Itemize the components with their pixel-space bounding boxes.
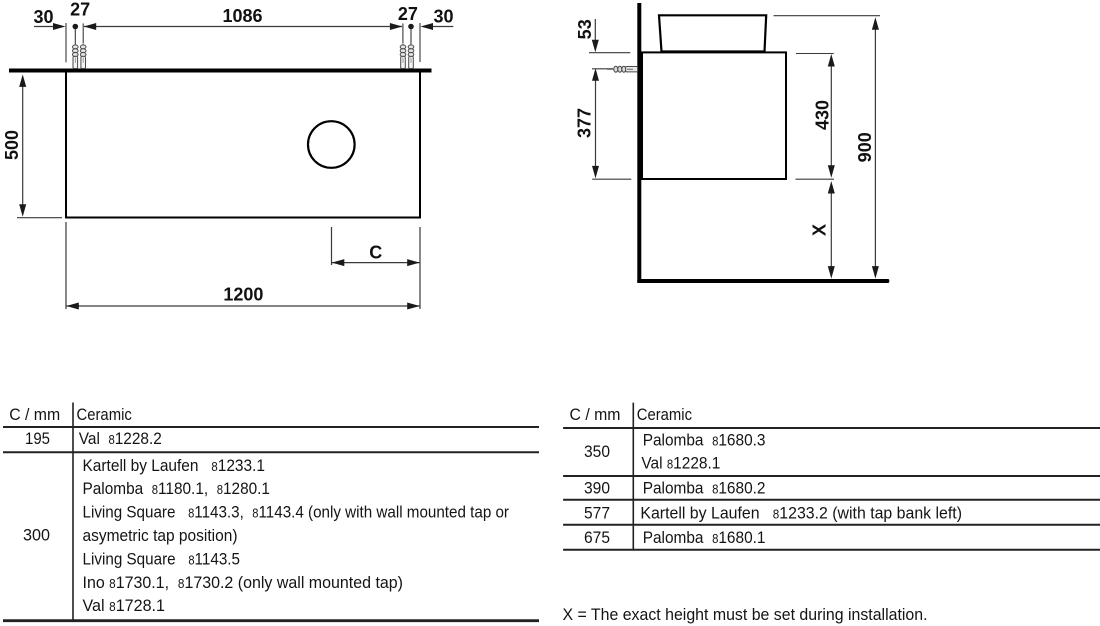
svg-text:900: 900 bbox=[855, 132, 875, 162]
svg-text:1086: 1086 bbox=[222, 6, 262, 26]
svg-text:Val 81228.1: Val 81228.1 bbox=[641, 454, 720, 473]
svg-text:X = The exact height must be s: X = The exact height must be set during … bbox=[563, 605, 928, 624]
svg-text:27: 27 bbox=[398, 4, 418, 24]
svg-text:350: 350 bbox=[584, 442, 610, 461]
svg-text:Val 81728.1: Val 81728.1 bbox=[83, 596, 166, 615]
svg-text:27: 27 bbox=[70, 0, 90, 20]
svg-text:Ceramic: Ceramic bbox=[637, 405, 693, 424]
svg-text:Kartell by Laufen 81233.1: Kartell by Laufen 81233.1 bbox=[83, 456, 266, 475]
svg-text:195: 195 bbox=[25, 429, 50, 448]
svg-text:C / mm: C / mm bbox=[570, 405, 621, 424]
svg-text:377: 377 bbox=[575, 108, 595, 138]
svg-text:C / mm: C / mm bbox=[9, 405, 60, 424]
svg-text:Val 81228.2: Val 81228.2 bbox=[79, 429, 162, 448]
svg-text:Palomba 81180.1, 81280.1: Palomba 81180.1, 81280.1 bbox=[83, 479, 271, 498]
svg-text:Kartell by Laufen 81233.2 (w: Kartell by Laufen 81233.2 (with tap bank… bbox=[640, 503, 962, 522]
svg-text:C: C bbox=[369, 243, 382, 263]
svg-text:500: 500 bbox=[2, 130, 22, 160]
svg-text:675: 675 bbox=[584, 528, 610, 547]
svg-text:53: 53 bbox=[575, 19, 595, 39]
svg-text:577: 577 bbox=[584, 503, 610, 522]
svg-text:asymetric tap position): asymetric tap position) bbox=[83, 526, 238, 545]
svg-text:Living Square 81143.3, 8114: Living Square 81143.3, 81143.4 (only wit… bbox=[83, 503, 510, 522]
svg-text:30: 30 bbox=[433, 6, 453, 26]
svg-text:300: 300 bbox=[23, 526, 50, 545]
svg-text:430: 430 bbox=[813, 100, 833, 130]
svg-text:30: 30 bbox=[33, 7, 53, 27]
svg-text:Palomba 81680.2: Palomba 81680.2 bbox=[643, 478, 766, 497]
svg-text:Palomba 81680.3: Palomba 81680.3 bbox=[643, 431, 766, 450]
svg-text:Ceramic: Ceramic bbox=[77, 405, 133, 424]
svg-text:1200: 1200 bbox=[223, 285, 263, 305]
svg-text:Palomba 81680.1: Palomba 81680.1 bbox=[643, 528, 766, 547]
svg-text:Ino 81730.1, 81730.2 (only wa: Ino 81730.1, 81730.2 (only wall mounted … bbox=[83, 573, 404, 592]
svg-text:X: X bbox=[810, 224, 830, 236]
svg-text:Living Square 81143.5: Living Square 81143.5 bbox=[83, 549, 241, 568]
svg-text:390: 390 bbox=[584, 478, 610, 497]
